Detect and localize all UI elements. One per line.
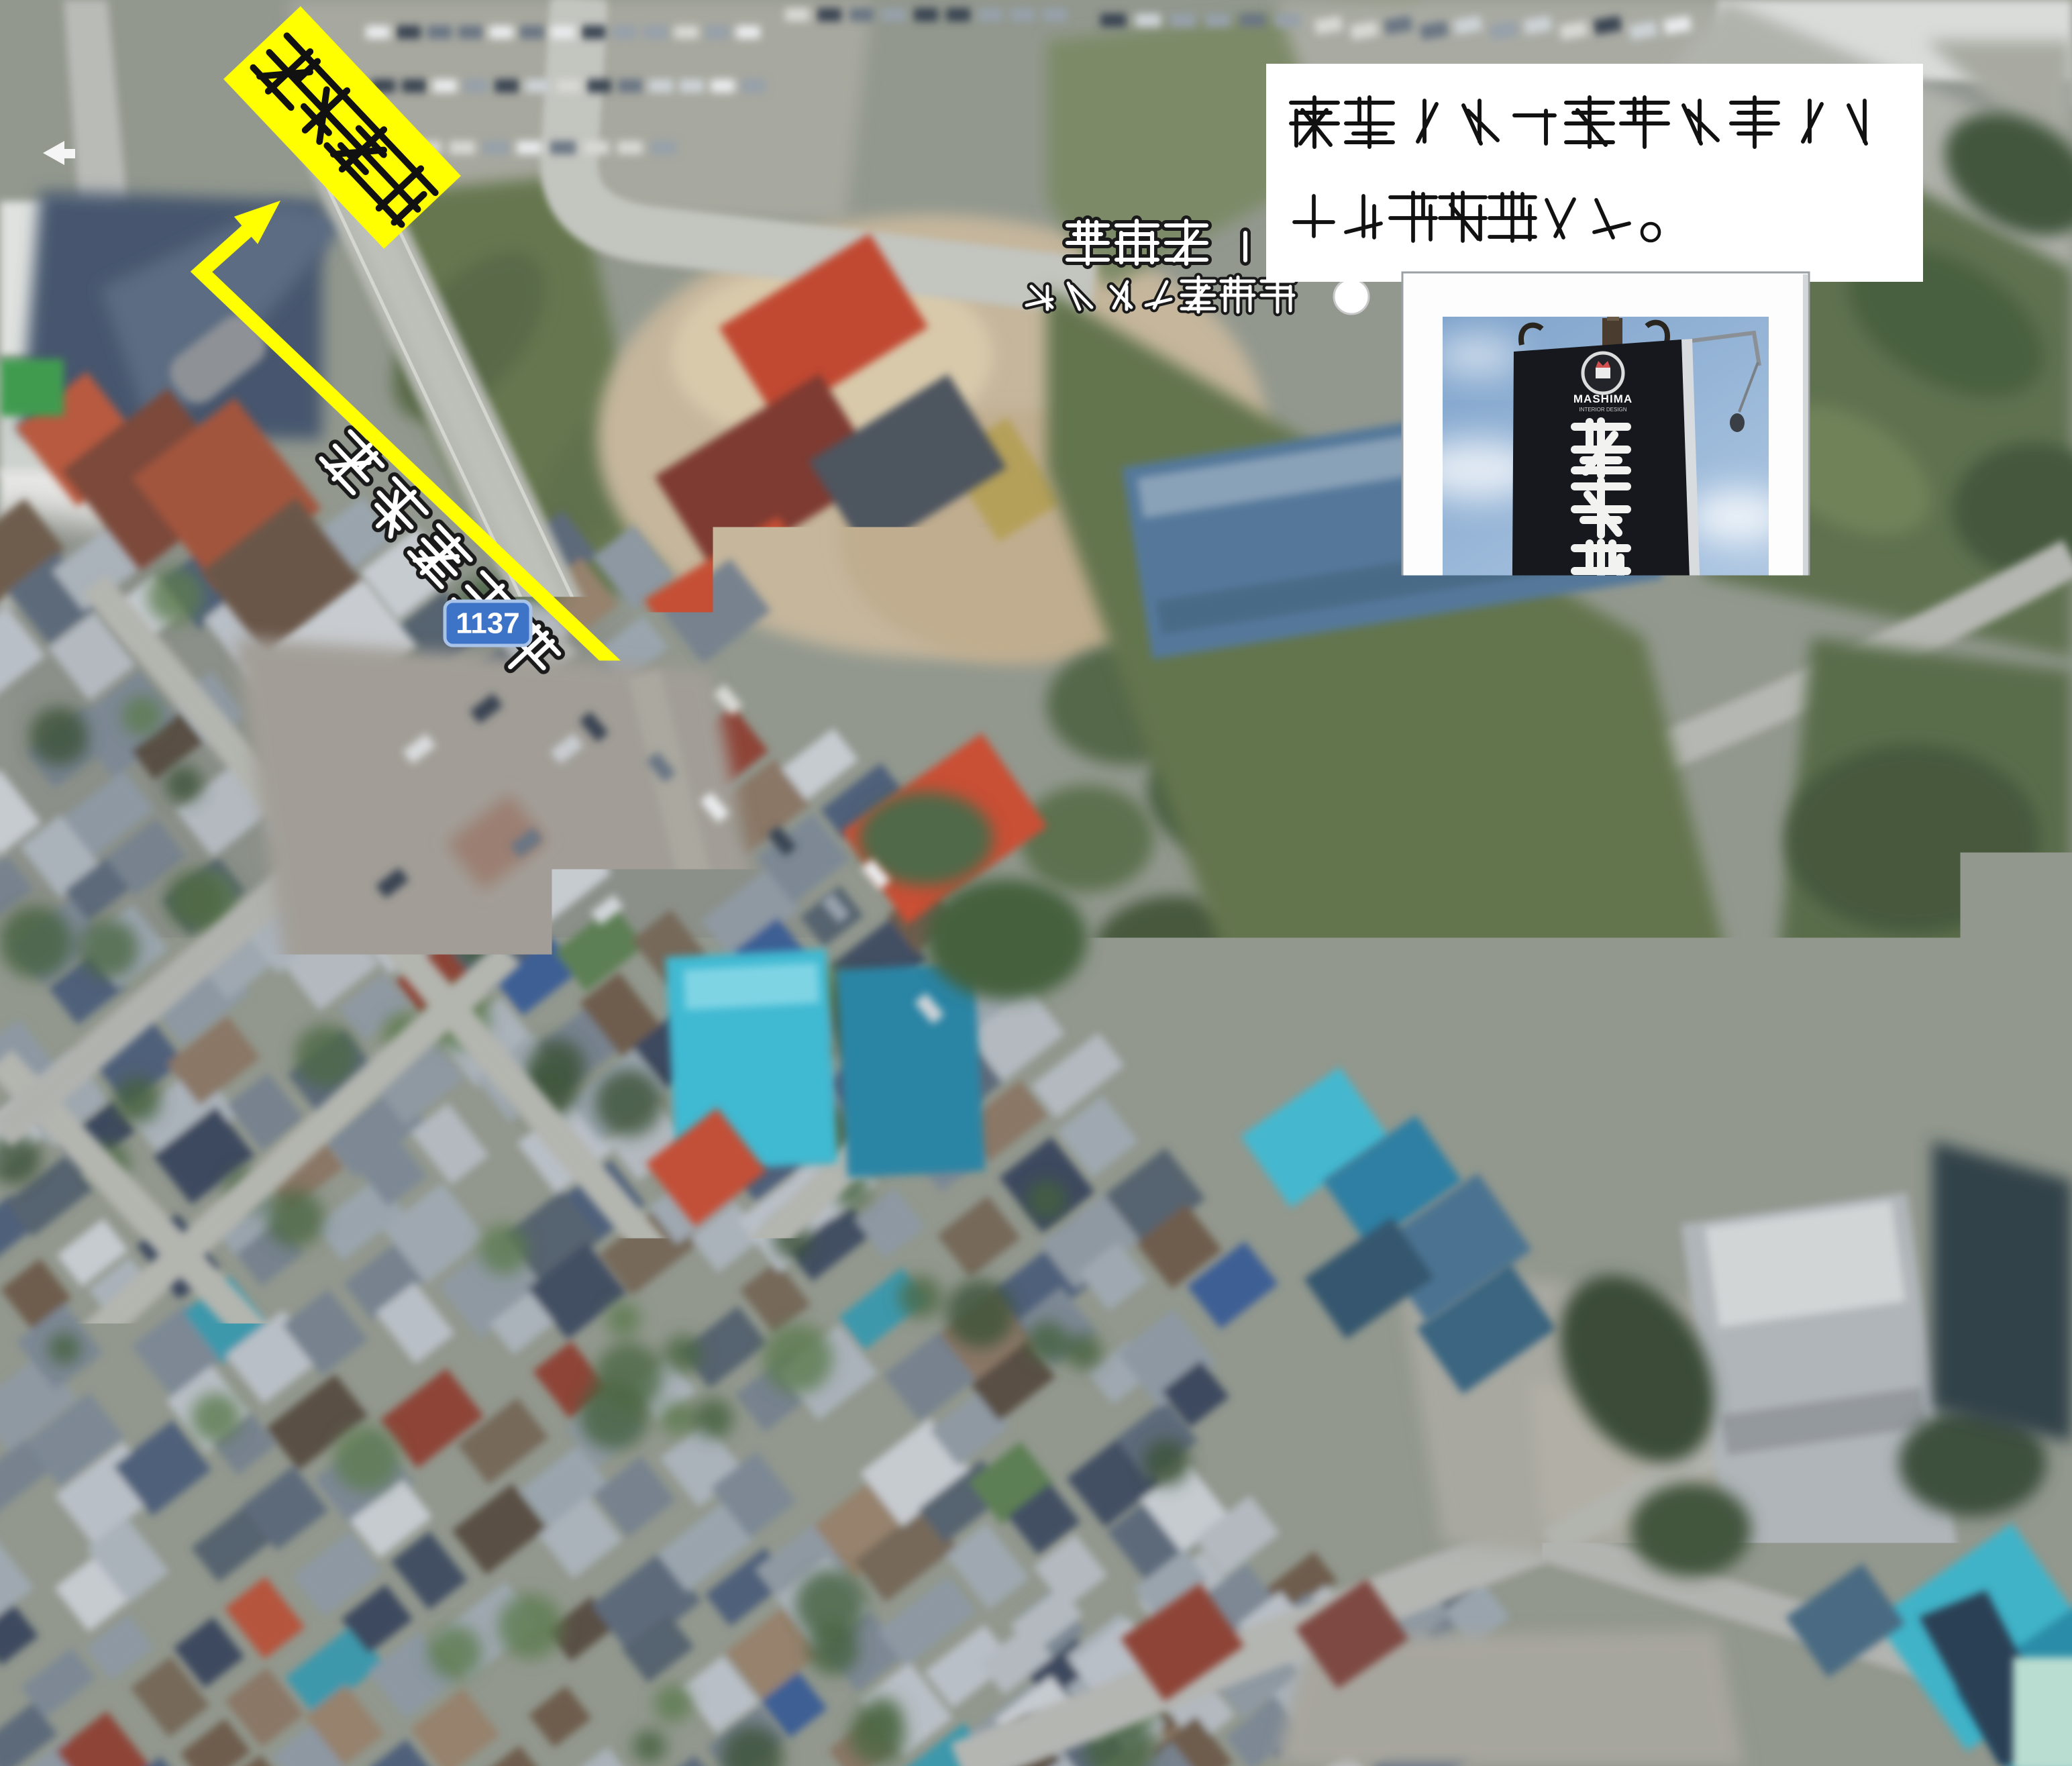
- svg-text:n: n: [411, 696, 437, 745]
- svg-text:©2025: ©2025: [1335, 1750, 1389, 1766]
- svg-text:1137: 1137: [1528, 1577, 1592, 1610]
- svg-text:INTERIOR DESIGN: INTERIOR DESIGN: [1579, 407, 1626, 413]
- svg-text:QET: QET: [1517, 741, 1704, 836]
- svg-text:MASHIMA: MASHIMA: [1573, 393, 1633, 405]
- svg-text:1137: 1137: [456, 607, 519, 640]
- svg-text:e: e: [340, 696, 364, 745]
- svg-text:DO N KAIDO: DO N KAIDO: [1634, 723, 1669, 730]
- svg-text:DeNSIA: DeNSIA: [1574, 1072, 1701, 1101]
- svg-text:Google Maps: Google Maps: [1319, 1655, 1693, 1722]
- svg-text:©2025 Airbus, Maxar Technologi: ©2025 Airbus, Maxar Technologies,: [913, 1750, 1198, 1766]
- svg-text:2: 2: [589, 1743, 612, 1766]
- svg-text:2: 2: [613, 1743, 635, 1766]
- svg-text:l: l: [370, 696, 382, 745]
- svg-text:©1996 CONSADOLE: ©1996 CONSADOLE: [1529, 727, 1599, 735]
- svg-text:i: i: [395, 696, 407, 745]
